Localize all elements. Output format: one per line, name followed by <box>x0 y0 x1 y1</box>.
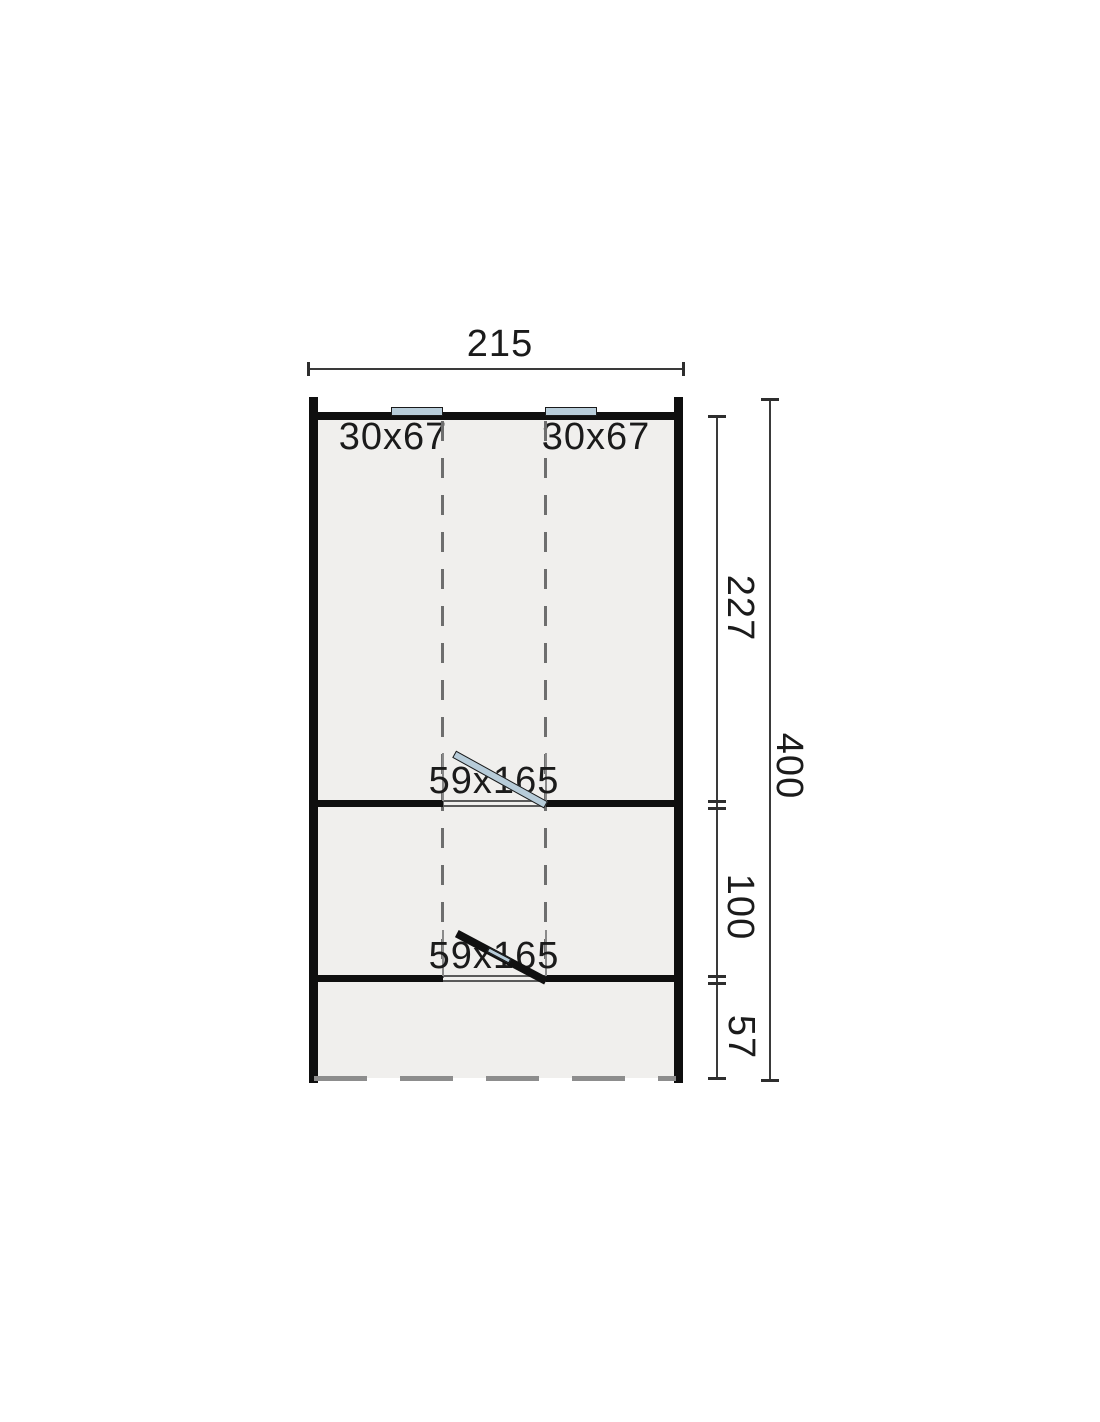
width-dimension-label: 215 <box>467 325 533 363</box>
wall-left <box>309 397 318 1083</box>
porch-depth-label: 57 <box>722 1015 760 1059</box>
interior-wall-2-right <box>546 975 674 982</box>
wall-right <box>674 397 683 1083</box>
dim-tick <box>708 800 726 803</box>
total-height-label: 400 <box>770 733 808 799</box>
window-2-label: 30x67 <box>542 418 651 456</box>
dim-tick <box>708 975 726 978</box>
dim-tick <box>708 415 726 418</box>
corridor-dashed-line-right <box>544 421 547 978</box>
width-dimension-line <box>308 368 684 370</box>
dim-tick <box>761 1079 779 1082</box>
room-main-depth-label: 227 <box>721 575 759 641</box>
corridor-dashed-line-left <box>441 421 444 978</box>
door-1-opening-line <box>443 805 546 807</box>
door-2-opening-line <box>443 980 546 982</box>
dim-tick <box>682 362 685 376</box>
dim-tick <box>708 807 726 810</box>
dim-tick <box>307 362 310 376</box>
interior-wall-1-right <box>546 800 674 807</box>
floor-plan-drawing: 215 30x67 30x67 59x165 59x165 227 100 57… <box>0 0 1100 1422</box>
dim-tick <box>761 398 779 401</box>
room-middle-depth-label: 100 <box>721 874 759 940</box>
dim-tick <box>708 982 726 985</box>
window-2 <box>545 407 597 416</box>
open-edge-dashed-line <box>314 1076 676 1081</box>
window-1-label: 30x67 <box>339 418 448 456</box>
window-1 <box>391 407 443 416</box>
dim-tick <box>708 1077 726 1080</box>
interior-wall-1-left <box>318 800 443 807</box>
interior-wall-2-left <box>318 975 443 982</box>
depth-dimension-chain-line <box>716 416 718 1080</box>
